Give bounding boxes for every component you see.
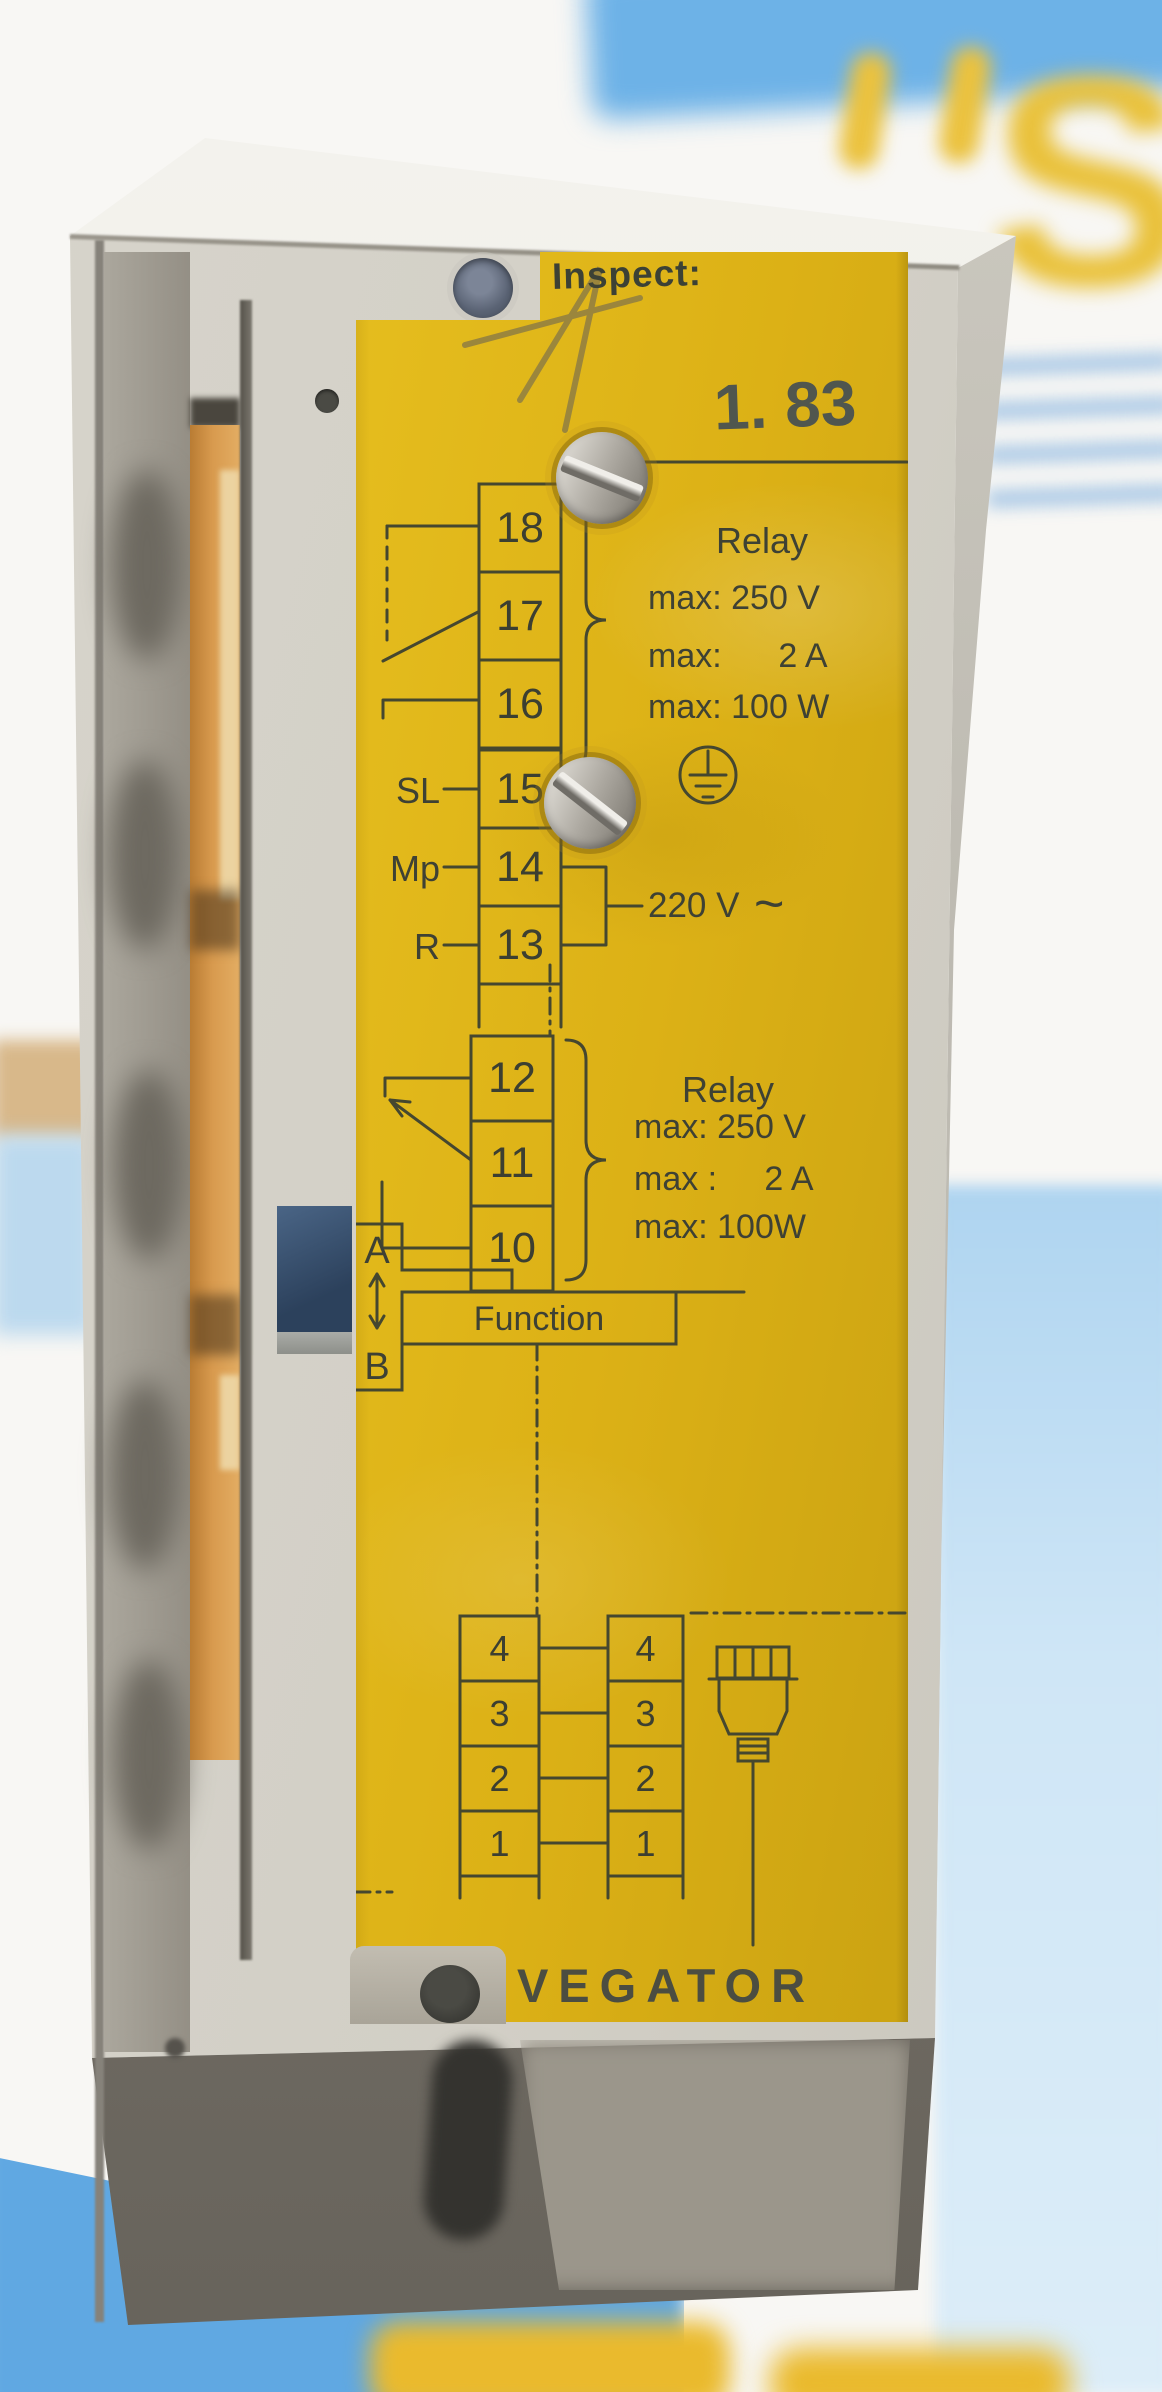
relay1-current: max: 2 A (648, 637, 828, 676)
supply-voltage: 220 V (648, 886, 739, 926)
pcb-highlight (220, 1375, 240, 1470)
probe-right-2: 2 (608, 1746, 683, 1811)
watermark-bottom-yellow (370, 2322, 730, 2392)
terminal-14: 14 (479, 828, 561, 906)
terminal-18: 18 (479, 484, 561, 572)
photo-vegator-relay-module: S (0, 0, 1162, 2392)
probe-right-4: 4 (608, 1616, 683, 1681)
relay1-title: Relay (692, 520, 832, 562)
probe-block-links (539, 1648, 608, 1843)
terminal-label-r: R (372, 926, 440, 968)
bottom-dot (165, 2038, 185, 2058)
terminal-12: 12 (471, 1036, 553, 1121)
pcb-gap (190, 890, 240, 950)
terminal-13: 13 (479, 906, 561, 984)
relay1-voltage: max: 250 V (648, 579, 820, 618)
function-label: Function (402, 1300, 676, 1339)
watermark-letter: S (990, 46, 1162, 316)
terminal-label-mp: Mp (372, 848, 440, 890)
terminal-10: 10 (471, 1206, 553, 1291)
relay1-power: max: 100 W (648, 688, 829, 727)
probe-right-3: 3 (608, 1681, 683, 1746)
supply-hookup-lines (561, 867, 642, 945)
terminal-diagram-label: Inspect: 1. 83 18 17 16 Relay max: 250 V… (356, 252, 908, 2022)
earth-ground-icon (680, 747, 736, 803)
bottom-mounting-slot (421, 2037, 515, 2242)
housing-hole (453, 258, 513, 318)
background-blue-right (935, 1185, 1162, 2392)
relay1-contact-symbol (383, 526, 479, 718)
screw-top (556, 432, 648, 524)
pcb-gap (190, 1295, 240, 1355)
probe-right-1: 1 (608, 1811, 683, 1876)
probe-left-3: 3 (460, 1681, 539, 1746)
pcb-highlight (220, 470, 240, 900)
brand-vegator: VEGATOR (476, 1958, 856, 2013)
ab-arrow-icon (370, 1274, 384, 1328)
terminal-label-sl: SL (372, 770, 440, 812)
bottom-face-highlight (520, 2040, 910, 2290)
channel-shadow (110, 1380, 180, 1570)
probe-left-2: 2 (460, 1746, 539, 1811)
probe-left-1: 1 (460, 1811, 539, 1876)
inspect-label: Inspect: (551, 252, 702, 298)
terminal-11: 11 (471, 1121, 553, 1206)
ac-tilde-icon: ~ (754, 874, 784, 934)
terminal-17: 17 (479, 572, 561, 660)
channel-shadow (110, 760, 180, 950)
relay2-title: Relay (658, 1069, 798, 1111)
recessed-dot (315, 389, 339, 413)
bottom-corner-hole (420, 1965, 480, 2023)
function-pos-b: B (358, 1346, 396, 1389)
pcb-slot-top (190, 398, 240, 428)
screw-slot (560, 455, 644, 502)
relay2-current: max : 2 A (634, 1160, 814, 1199)
function-pos-a: A (358, 1230, 396, 1273)
terminal-16: 16 (479, 660, 561, 748)
function-switch-window (277, 1206, 352, 1332)
probe-left-4: 4 (460, 1616, 539, 1681)
background-stripes (982, 352, 1162, 529)
watermark-bottom-yellow (770, 2348, 1070, 2392)
screw-slot (552, 771, 629, 836)
screw-middle (544, 757, 636, 849)
probe-block-stubs (460, 1876, 683, 1898)
left-edge-shadow (95, 240, 104, 2322)
relay2-power: max: 100W (634, 1208, 806, 1247)
relay2-voltage: max: 250 V (634, 1108, 806, 1147)
front-groove (240, 300, 252, 1960)
channel-shadow (114, 1070, 184, 1260)
function-switch-lower (277, 1332, 352, 1354)
channel-shadow (114, 1660, 184, 1850)
channel-shadow (112, 470, 182, 660)
brace-relay2 (566, 1040, 606, 1280)
probe-connector-icon (709, 1647, 797, 1945)
inspect-stamp: 1. 83 (689, 365, 881, 446)
